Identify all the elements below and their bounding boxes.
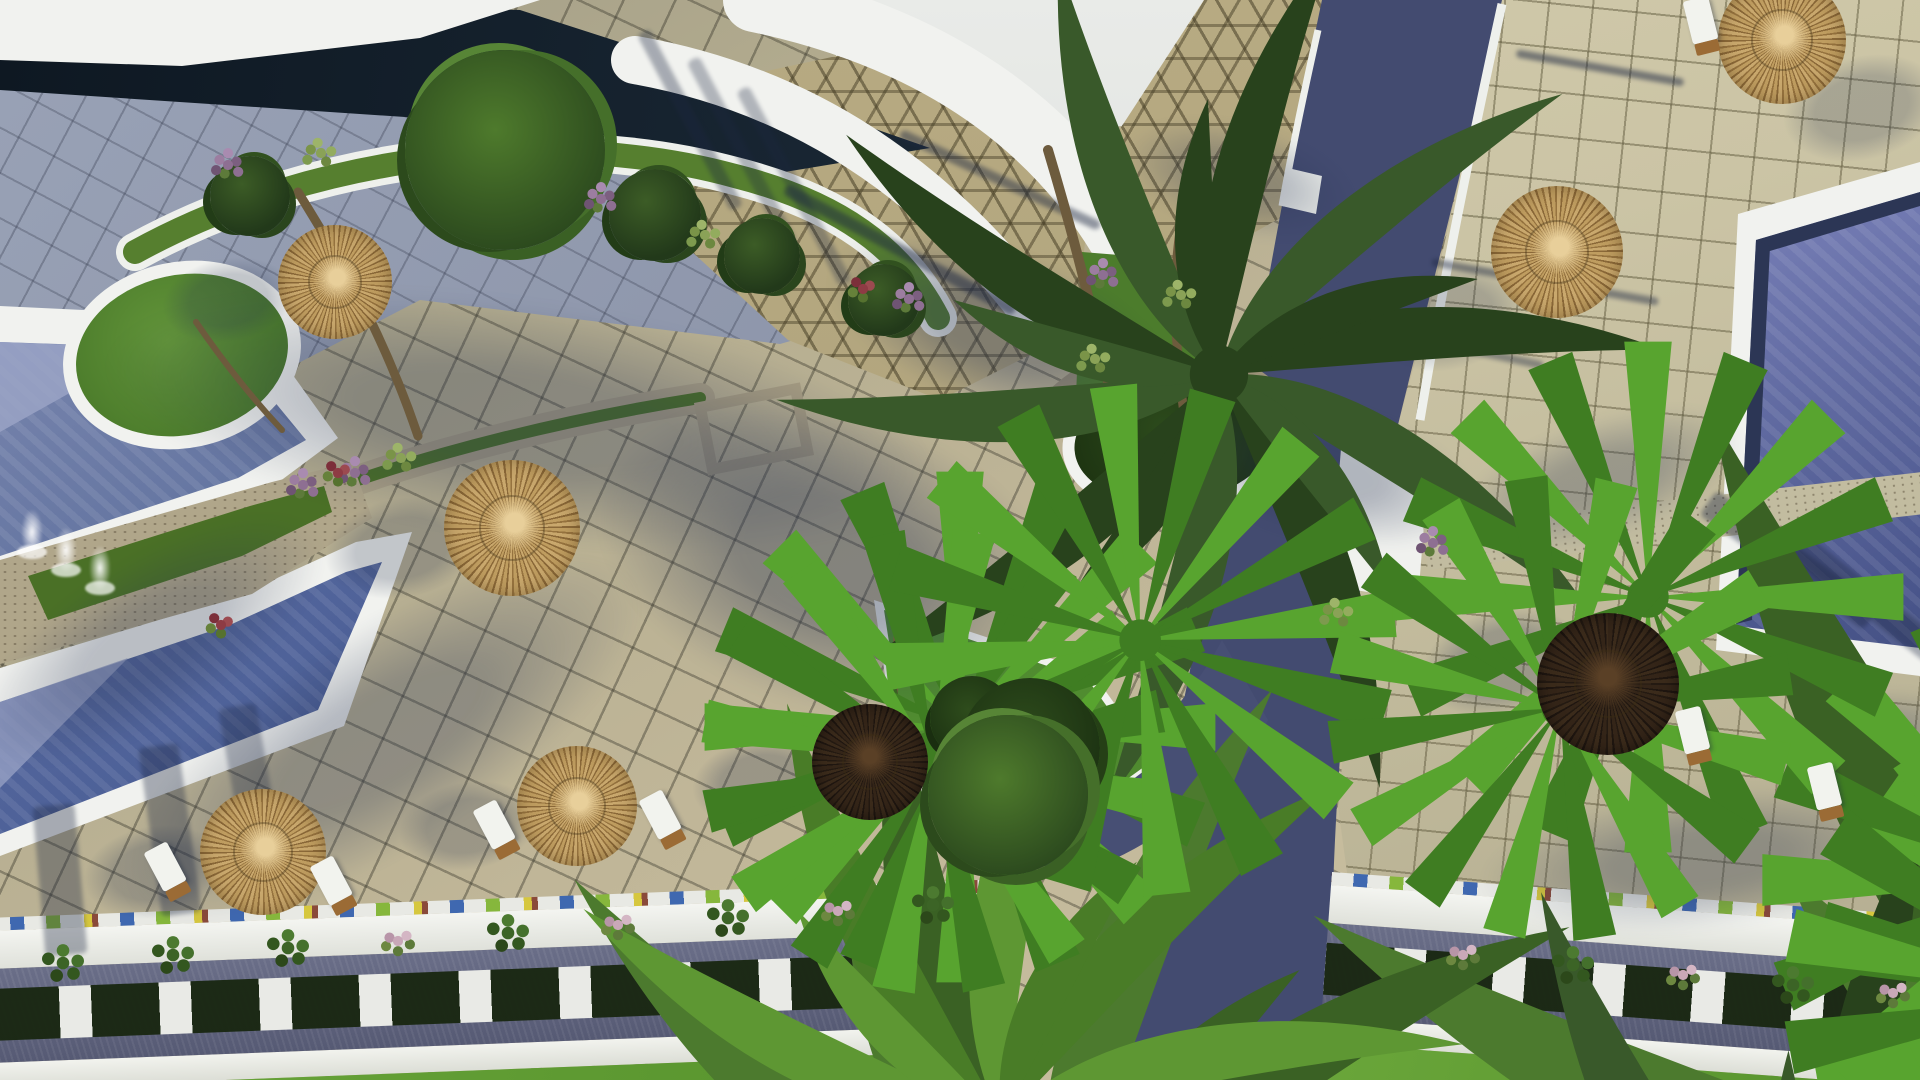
aerial-resort-render bbox=[0, 0, 1920, 1080]
thatch-umbrella bbox=[517, 746, 637, 866]
sun-lounger bbox=[638, 789, 687, 851]
thatch-umbrella bbox=[1491, 186, 1623, 318]
sun-lounger bbox=[472, 799, 521, 861]
sun-lounger bbox=[1807, 762, 1846, 823]
umbrellas-and-loungers-layer bbox=[0, 0, 1920, 1080]
thatch-umbrella bbox=[812, 704, 928, 820]
sun-lounger bbox=[309, 855, 358, 917]
sun-lounger bbox=[143, 841, 192, 903]
thatch-umbrella bbox=[200, 789, 326, 915]
thatch-umbrella bbox=[1537, 613, 1679, 755]
sun-lounger bbox=[1675, 706, 1714, 767]
thatch-umbrella bbox=[1718, 0, 1846, 104]
sun-lounger bbox=[1683, 0, 1722, 56]
thatch-umbrella bbox=[278, 225, 392, 339]
thatch-umbrella bbox=[444, 460, 580, 596]
